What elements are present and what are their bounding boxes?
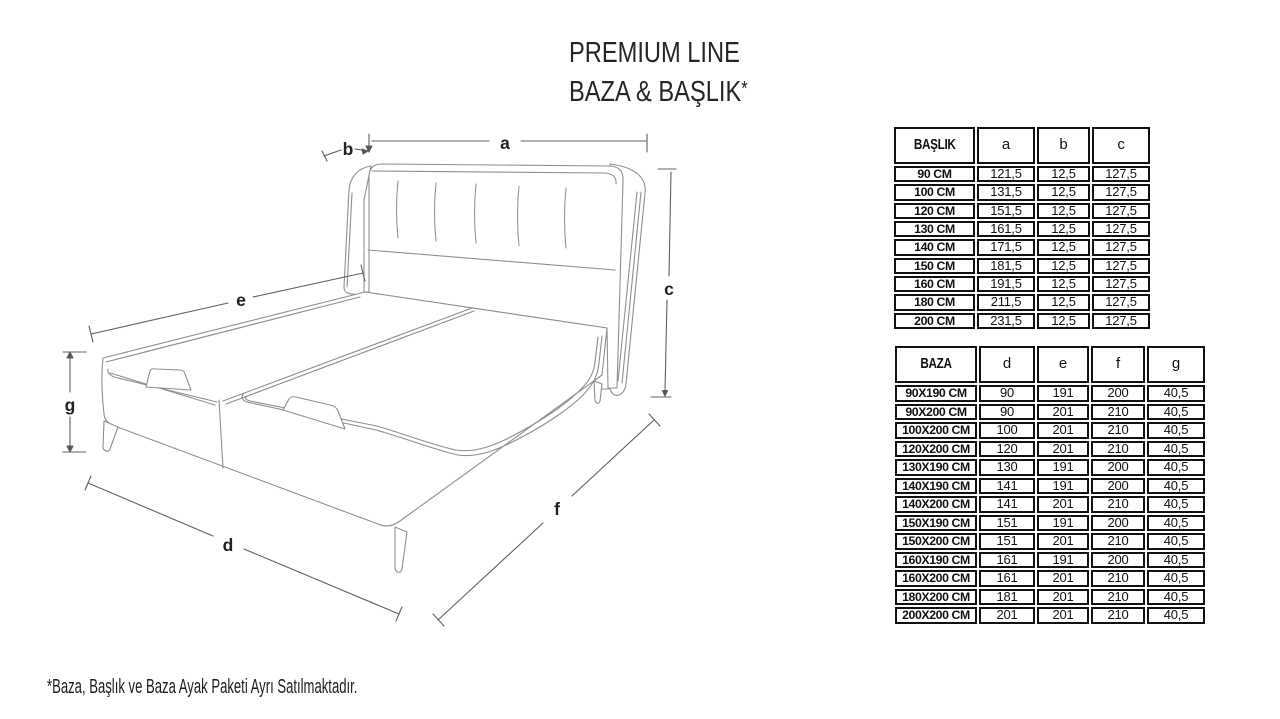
svg-text:c: c [664,279,674,299]
svg-text:g: g [65,395,76,415]
svg-text:d: d [223,535,234,555]
svg-text:b: b [343,139,354,159]
svg-text:e: e [236,290,246,310]
svg-text:a: a [500,133,510,153]
svg-text:f: f [554,499,560,519]
